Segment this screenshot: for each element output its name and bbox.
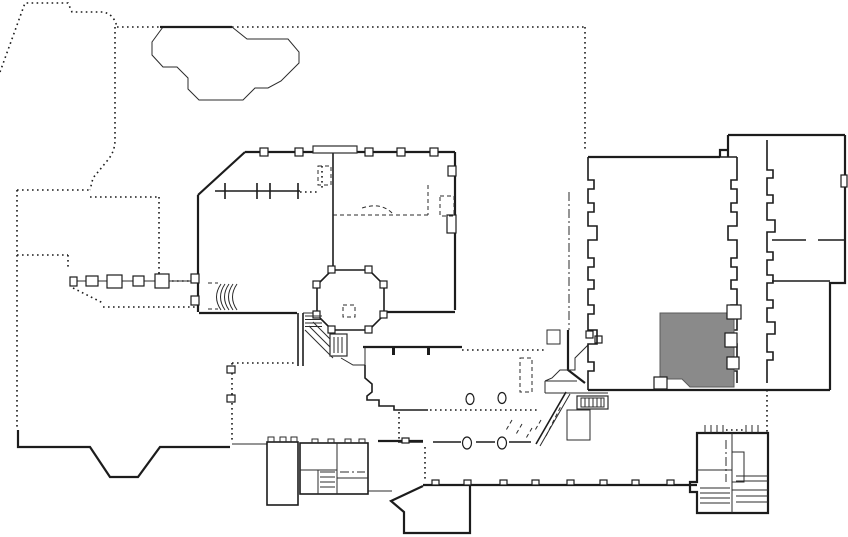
curved-stair	[208, 283, 237, 310]
south-terrace	[227, 347, 545, 482]
southwest-exterior	[18, 430, 697, 533]
floor-plan-canvas	[0, 0, 848, 537]
south-connector	[545, 330, 608, 440]
pergola-columns	[70, 274, 197, 288]
octagonal-room	[313, 266, 387, 333]
floor-plan-svg	[0, 0, 848, 537]
highlighted-room[interactable]	[654, 305, 741, 389]
lower-room-block	[267, 437, 423, 505]
partition-row	[215, 183, 300, 199]
site-boundary-dotted-line	[0, 3, 585, 430]
bottom-right-stair-block	[690, 425, 768, 513]
highlighted-room-fill[interactable]	[660, 313, 734, 387]
double-door	[313, 146, 357, 153]
pond-outline	[152, 27, 299, 100]
diagonal-stair	[298, 313, 365, 366]
